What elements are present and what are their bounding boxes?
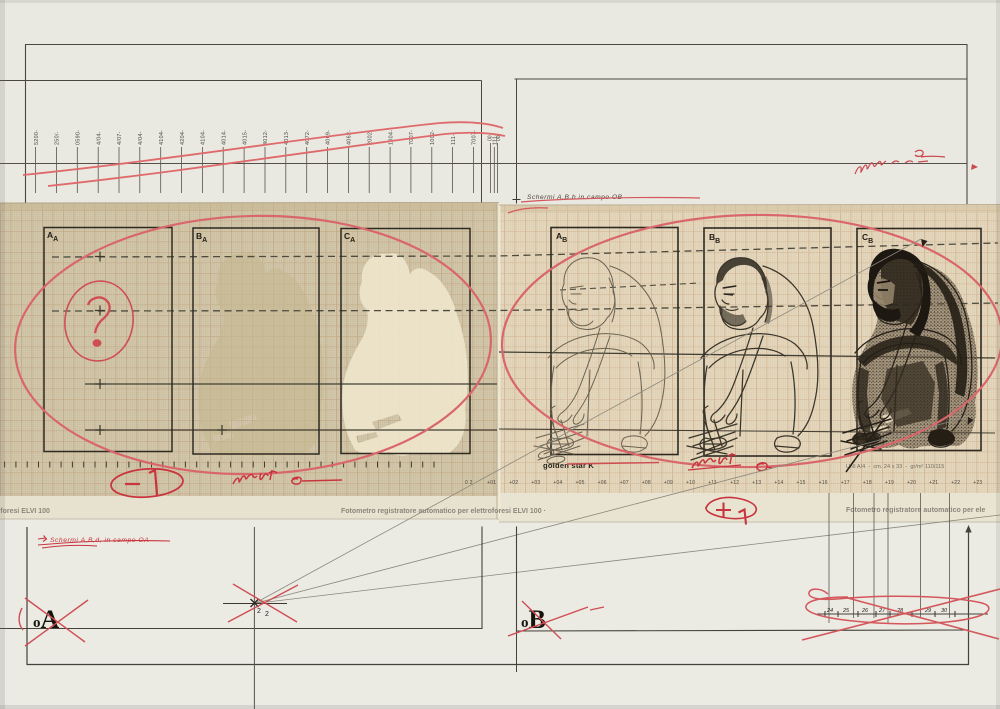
svg-text:+14: +14 (774, 480, 783, 486)
svg-text:4204-: 4204- (180, 130, 186, 145)
svg-text:4/07-: 4/07- (117, 131, 123, 145)
svg-text:+06: +06 (598, 480, 607, 486)
svg-text:26: 26 (861, 608, 869, 614)
svg-text:+03: +03 (531, 480, 540, 486)
svg-text:Fotometro registratore automat: Fotometro registratore automatico per el… (341, 508, 546, 515)
svg-text:4014-: 4014- (221, 130, 227, 145)
svg-text:+05: +05 (576, 480, 585, 486)
svg-text:+18: +18 (863, 480, 872, 486)
svg-text:4012-: 4012- (263, 130, 269, 145)
svg-text:4/04-: 4/04- (96, 131, 102, 145)
svg-text:1002-: 1002- (430, 130, 436, 145)
svg-text:4062-: 4062- (347, 130, 353, 145)
svg-text:+02: +02 (509, 480, 518, 486)
svg-text:+12: +12 (730, 480, 739, 486)
svg-text:+17: +17 (841, 480, 850, 486)
svg-text:4104-: 4104- (159, 130, 165, 145)
svg-text:+16: +16 (819, 480, 828, 486)
svg-text:+13: +13 (752, 480, 761, 486)
svg-text:golden star K: golden star K (543, 461, 594, 470)
svg-text:24: 24 (826, 608, 833, 614)
svg-text:4/04-: 4/04- (138, 131, 144, 145)
svg-text:30: 30 (941, 608, 948, 614)
svg-text:4072-: 4072- (305, 130, 311, 145)
svg-text:0590-: 0590- (76, 130, 82, 145)
svg-text:25: 25 (842, 608, 850, 614)
svg-text:+07: +07 (620, 480, 629, 486)
svg-text:+20: +20 (907, 480, 916, 486)
svg-text:4015-: 4015- (242, 130, 248, 145)
svg-text:Fotometro registratore automat: Fotometro registratore automatico per el… (846, 507, 985, 514)
svg-text:1004-: 1004- (388, 130, 394, 145)
svg-text:+15: +15 (797, 480, 806, 486)
svg-text:250/-: 250/- (55, 131, 61, 145)
svg-text:111-: 111- (451, 134, 457, 145)
svg-text:5200-: 5200- (34, 130, 40, 145)
svg-text:00: 00 (488, 135, 494, 141)
svg-text:27: 27 (878, 608, 886, 614)
svg-text:+19: +19 (885, 480, 894, 486)
svg-text:2: 2 (257, 608, 261, 615)
svg-text:+04: +04 (553, 480, 562, 486)
svg-text:+23: +23 (973, 480, 982, 486)
svg-text:+08: +08 (642, 480, 651, 486)
svg-text:+21: +21 (929, 480, 938, 486)
svg-text:+22: +22 (951, 480, 960, 486)
svg-text:oforesi ELVI 100: oforesi ELVI 100 (0, 508, 50, 515)
svg-text:UNI A/4 - cm. 24 x 33 - gr: UNI A/4 - cm. 24 x 33 - gr/m² 110/115 (846, 464, 944, 470)
svg-text:+10: +10 (686, 480, 695, 486)
svg-text:4104-: 4104- (201, 130, 207, 145)
svg-text:+09: +09 (664, 480, 673, 486)
svg-text:2: 2 (265, 611, 269, 618)
svg-text:+01: +01 (487, 480, 496, 486)
